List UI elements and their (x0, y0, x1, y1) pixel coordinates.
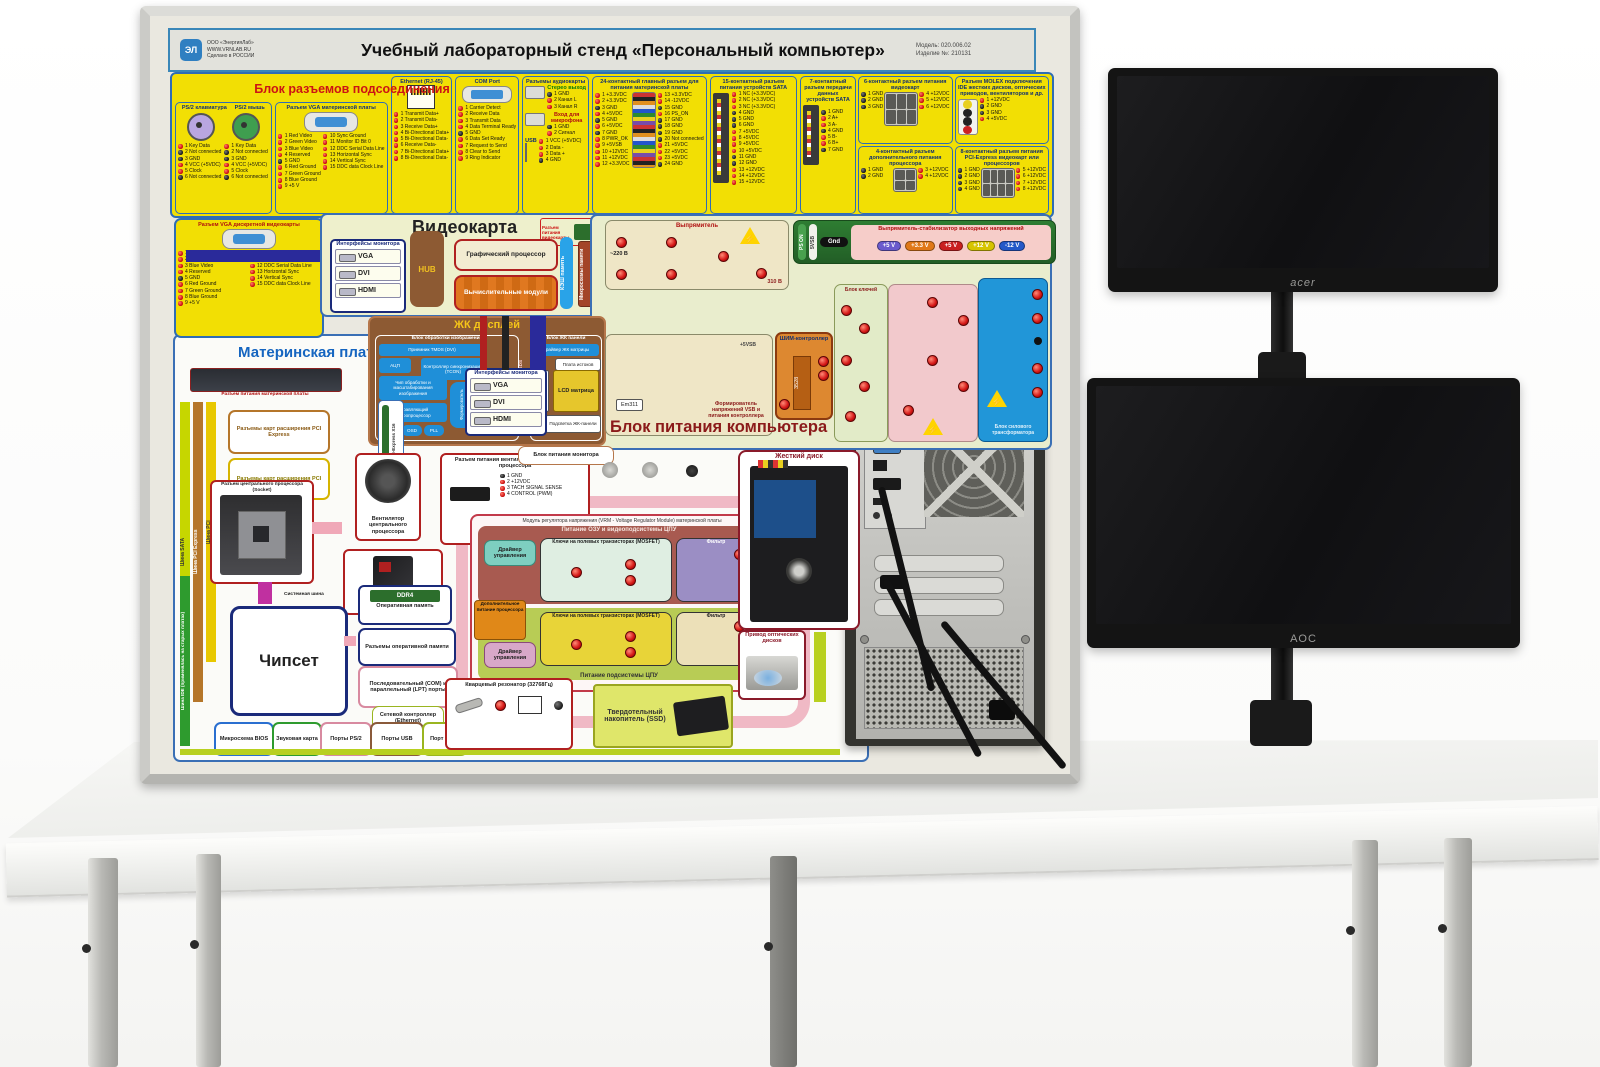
dvi-port-with-cable (873, 478, 901, 490)
vrm-top-title: Питание ОЗУ и видеоподсистемы ЦПУ (478, 527, 760, 533)
panel-com: COM Port 1 Carrier Detect2 Receive Data3… (455, 76, 519, 214)
psu-warning-icon: ⚡ (923, 418, 943, 435)
terminal-dot (1032, 313, 1043, 324)
pin-label: 4 GND (539, 157, 586, 163)
molex-connector (958, 99, 978, 135)
pin-label: 8 +12VDC (1016, 186, 1046, 192)
terminal-dot (903, 405, 914, 416)
wire-5vsb-label: +5VSB (740, 342, 756, 348)
odd-box: Привод оптических дисков (738, 630, 806, 700)
sata7-title: 7-контактный разъем передачи данных устр… (803, 79, 853, 103)
pin-label: 6 +12VDC (919, 104, 949, 110)
port-row: HDMI (470, 412, 542, 427)
usb-pins: 1 VCC (+5VDC)2 Data -3 Data +4 GND (539, 138, 586, 163)
toggle-switch (602, 462, 618, 478)
screw (1021, 635, 1030, 644)
vga-discrete-panel: Разъем VGA дискретной видеокарты 1 Red V… (174, 218, 324, 338)
terminal-dot (859, 381, 870, 392)
table-leg (1352, 840, 1378, 1067)
acer-logo: acer (1108, 277, 1498, 289)
odd-title: Привод оптических дисков (740, 632, 804, 645)
table-leg (770, 856, 797, 1067)
pin-label: 2 GND (861, 173, 892, 179)
bus-pcie: Шина PCI Express (193, 402, 203, 702)
vendor-logo-icon: ЭЛ (180, 39, 202, 61)
socket-cpu-arrow (312, 522, 342, 534)
molex-title: Разъем MOLEX подключения IDE жестких дис… (958, 79, 1047, 97)
panel-audio: Разъемы аудиокарты Стерео выход 1 GND2 К… (522, 76, 589, 214)
stereo-pins: 1 GND2 Канал L3 Канал R (547, 91, 586, 110)
pin-label: 9 +5 V (178, 300, 248, 306)
panel-atx24: 24-контактный главный разъем для питания… (592, 76, 707, 214)
vga-mb-pins-left: 1 Red Video2 Green Video3 Blue Video4 Re… (278, 133, 321, 190)
pin-label: 9 Ring Indicator (458, 155, 516, 161)
ssd-photo (673, 696, 729, 737)
terminal-dot (927, 355, 938, 366)
lcd-matrix: LCD матрица (553, 370, 599, 412)
monitor-bottom-aoc: AOC (1087, 378, 1520, 648)
pcie6-title: 6-контактный разъем питания видеокарт (861, 79, 950, 91)
pc-case (845, 398, 1045, 746)
lcd-scaler: Чип обработки и масштабирования изображе… (379, 376, 447, 400)
usb-connector (525, 143, 527, 162)
panel-sata15: 15-контактный разъем питания устройств S… (710, 76, 797, 214)
mic-jack (525, 113, 545, 126)
connector-row: PS/2 клавиатура PS/2 мышь 1 Key Data2 No… (175, 76, 1049, 214)
audio-jack (873, 512, 880, 519)
monitor-bottom-screen (1096, 386, 1511, 624)
terminal-dot (666, 237, 677, 248)
quartz-symbol (518, 696, 542, 714)
hdd-photo (750, 466, 848, 622)
terminal-dot (859, 323, 870, 334)
vrm-aux-label: Дополнительное питание процессора (475, 601, 525, 614)
videocard-panel: Видеокарта Разъем питания видеокарты Инт… (320, 213, 616, 317)
aoc-logo: AOC (1087, 633, 1520, 645)
videocard-cache: КЭШ память (560, 237, 573, 309)
rj45-port (873, 460, 887, 471)
mb-power-conn: Разъем питания материнской платы (190, 368, 340, 398)
pin-label: 3 GND (861, 104, 883, 110)
pcie6-connector (884, 92, 918, 126)
videocard-hub: HUB (410, 231, 444, 307)
pin-label: 9 +5 V (278, 183, 321, 189)
videocard-ports: VGADVIHDMI (332, 249, 404, 298)
fan-conn-pins: 1 GND2 +12VDC3 TACH SIGNAL SENSE4 CONTRO… (500, 473, 586, 501)
cpu4-title: 4-контактный разъем дополнительного пита… (861, 149, 950, 167)
ethernet-pins: 1 Transmit Data+2 Transmit Data-3 Receiv… (394, 111, 450, 161)
port-row: DVI (335, 266, 401, 281)
port-row: VGA (335, 249, 401, 264)
atx24-pins-left: 1 +3.3VDC2 +3.3VDC3 GND4 +5VDC5 GND6 +5V… (595, 92, 629, 168)
terminal-dot (958, 381, 969, 392)
pin-label: 15 DDC data Clock Line (323, 164, 385, 170)
voltage-rail: +5 V (877, 241, 902, 251)
rectifier-220v: ~220 В (610, 251, 628, 257)
pcie8-connector (981, 168, 1015, 198)
sata7-connector (803, 105, 819, 165)
cpu4-pins-left: 1 GND2 GND (861, 167, 892, 193)
videocard-monitor-if: Интерфейсы монитора VGADVIHDMI (330, 239, 406, 313)
molex-pins: 1 +12VDC2 GND3 GND4 +5VDC (980, 97, 1047, 137)
com-pins: 1 Carrier Detect2 Receive Data3 Transmit… (458, 105, 516, 162)
vsb-pill: 5VSB (809, 224, 817, 260)
atx24-pins-right: 13 +3.3VDC14 -12VDC15 GND16 PS_ON17 GND1… (658, 92, 704, 168)
terminal-dot (625, 559, 636, 570)
lcd-backlight: Подсветка ЖК-панели (545, 415, 601, 433)
pwm-title: ШИМ-контроллер (777, 336, 831, 342)
odd-green-arrow (814, 632, 826, 702)
pin-label: 4 +5VDC (980, 116, 1047, 122)
ram-box: DDR4 Оперативная память (358, 585, 452, 625)
toggle-switch (642, 462, 658, 478)
pin-label: 3 Канал R (547, 104, 586, 110)
videocard-compute: Вычислительные модули (454, 275, 558, 311)
mb-power-conn-photo (190, 368, 342, 392)
sata15-connector (713, 93, 729, 183)
ps2-keyboard-title: PS/2 клавиатура (182, 105, 227, 111)
mb-power-conn-label: Разъем питания материнской платы (190, 392, 340, 398)
vendor-logo: ЭЛ ООО «ЭнергияЛаб» WWW.VRNLAB.RU Сделан… (180, 39, 330, 61)
psu-title: Блок питания компьютера (610, 418, 827, 437)
odd-disc (754, 670, 782, 686)
terminal-dot (927, 297, 938, 308)
vga-mb-title: Разъем VGA материнской платы (278, 105, 385, 111)
vrm-bottom-driver: Драйвер управления (484, 642, 536, 668)
terminal-dot (666, 269, 677, 280)
vrm-top-mosfet-label: Ключи на полевых транзисторах (MOSFET) (541, 539, 671, 545)
terminal-dot (818, 356, 829, 367)
vrm-bottom-mosfet-label: Ключи на полевых транзисторах (MOSFET) (541, 613, 671, 619)
mb-monitor-if-title: Интерфейсы монитора (467, 370, 545, 376)
transformer-label: Блок силового трансформатора (981, 425, 1045, 437)
vrm-top-driver-label: Драйвер управления (487, 547, 533, 559)
lcd-pll: PLL (424, 425, 444, 436)
mic-title: Вход для микрофона (547, 112, 586, 124)
sysbus-arrow (258, 582, 272, 604)
keys-title: Блок ключей (835, 287, 887, 293)
pin-label: 8 Bi-Directional Data- (394, 155, 450, 161)
terminal-dot (571, 567, 582, 578)
hdmi-up-arrow (530, 316, 546, 370)
pcie-slots-box: Разъемы карт расширения PCI Express (228, 410, 330, 454)
hdd-sata-cable (758, 460, 788, 468)
em311-chip: Em311 (616, 399, 643, 411)
cpu-fan-box: Вентилятор центрального процессора (355, 453, 421, 541)
vrm-bottom-driver-label: Драйвер управления (487, 649, 533, 661)
monitor-top-acer: acer (1108, 68, 1498, 292)
cpu-fan-label: Вентилятор центрального процессора (359, 516, 417, 535)
panel-molex: Разъем MOLEX подключения IDE жестких дис… (955, 76, 1050, 144)
voltage-rail: +3.3 V (905, 241, 935, 251)
compute-label: Вычислительные модули (464, 290, 548, 296)
rectifier-title: Выпрямитель (606, 223, 788, 229)
cpu-brand-mark (379, 562, 391, 572)
board-model: Модель: 020.006.02 (916, 42, 1026, 50)
table-leg (88, 858, 118, 1067)
pwm-box: ШИМ-контроллер 3528 (775, 332, 833, 420)
board-title: Учебный лабораторный стенд «Персональный… (330, 40, 916, 61)
odd-photo (746, 656, 798, 690)
monitor-top-screen (1117, 76, 1489, 268)
sata15-title: 15-контактный разъем питания устройств S… (713, 79, 794, 91)
ps2-ports-label: Порты PS/2 (330, 736, 361, 742)
quartz-pin1 (495, 700, 506, 711)
voltage-rail: -12 V (999, 241, 1025, 251)
pin-label: 4 GND (958, 186, 980, 192)
panel-pcie8: 8-контактный разъем питания PCI-Express … (955, 146, 1050, 214)
terminal-dot (625, 631, 636, 642)
terminal-dot (616, 269, 627, 280)
cpu4-pins-right: 3 +12VDC4 +12VDC (918, 167, 949, 193)
ps2-keyboard-pins: 1 Key Data2 Not connected3 GND4 VCC (+5V… (178, 143, 222, 181)
pcie8-title: 8-контактный разъем питания PCI-Express … (958, 149, 1047, 167)
transformer-warning-icon: ⚡ (987, 390, 1007, 407)
terminal-dot (571, 639, 582, 650)
board-title-bar: ЭЛ ООО «ЭнергияЛаб» WWW.VRNLAB.RU Сделан… (168, 28, 1036, 72)
ram-slots-label: Разъемы оперативной памяти (365, 644, 449, 650)
mount-table-clamp (1250, 700, 1312, 746)
board-model-info: Модель: 020.006.02 Изделие №: 210131 (916, 42, 1026, 58)
vendor-line1: ООО «ЭнергияЛаб» (207, 40, 254, 47)
stab-box: Выпрямитель-стабилизатор выходных напряж… (851, 225, 1051, 260)
vendor-info: ООО «ЭнергияЛаб» WWW.VRNLAB.RU Сделано в… (207, 40, 254, 60)
terminal-dot (625, 575, 636, 586)
psu-former-label: Формирователь напряжений VSB и питания к… (704, 401, 768, 419)
chipset-box: Чипсет (230, 606, 348, 716)
monitor-psu-label: Блок питания монитора (533, 452, 598, 458)
hub-label: HUB (418, 265, 435, 274)
pin-label: 6 Not connected (178, 174, 222, 180)
ps-on-pill: PS ON (798, 224, 806, 260)
rectifier-box: Выпрямитель ~220 В 310 В ⚡ (605, 220, 789, 290)
terminal-dot (841, 355, 852, 366)
lcd-adc: АЦП (379, 358, 411, 373)
screw (860, 635, 869, 644)
cpu-socket-label: Разъем центрального процессора (Socket) (212, 482, 312, 495)
panel-sata7: 7-контактный разъем передачи данных устр… (800, 76, 856, 214)
terminal-dot (625, 647, 636, 658)
stereo-jack (525, 86, 545, 99)
videocard-monitor-if-title: Интерфейсы монитора (332, 241, 404, 247)
atx24-connector (632, 92, 656, 168)
terminal-dot (1032, 363, 1043, 374)
pin-label: 15 DDC data Clock Line (250, 281, 320, 287)
stab-title: Выпрямитель-стабилизатор выходных напряж… (851, 226, 1051, 232)
voltage-rail: +5 V (939, 241, 964, 251)
gpu-label: Графический процессор (466, 252, 545, 258)
pcie6-pins-right: 4 +12VDC5 +12VDC6 +12VDC (919, 91, 949, 127)
connector-section: PS/2 клавиатура PS/2 мышь 1 Key Data2 No… (170, 72, 1054, 218)
ddr4-module: DDR4 (370, 590, 440, 602)
ps2-mouse-pins: 1 Key Data2 Not connected3 GND4 VCC (+5V… (224, 143, 268, 181)
terminal-dot (841, 305, 852, 316)
quartz-title: Кварцевый резонатор (32768Гц) (449, 682, 569, 688)
panel-vga-mb: Разъем VGA материнской платы 1 Red Video… (275, 102, 388, 214)
pin-label: 4 CONTROL (PWM) (500, 491, 586, 497)
pin-label: 24 GND (658, 161, 704, 167)
pcie6-pins-left: 1 GND2 GND3 GND (861, 91, 883, 127)
com-lpt-label: Последовательный (COM) и параллельный (L… (362, 681, 454, 693)
terminal-dot (958, 315, 969, 326)
usb-ports-label: Порты USB (381, 736, 412, 742)
ps2-mouse-connector (232, 113, 260, 141)
panel-pcie6: 6-контактный разъем питания видеокарт 1 … (858, 76, 953, 144)
vrm-top-driver: Драйвер управления (484, 540, 536, 566)
panel-ethernet: Ethernet (RJ-45) 1 Transmit Data+2 Trans… (391, 76, 453, 214)
cpu-socket-box: Разъем центрального процессора (Socket) (210, 480, 314, 584)
sound-label: Звуковая карта (276, 736, 318, 742)
videocard-gpu: Графический процессор (454, 239, 558, 271)
high-voltage-warning-icon: ⚡ (740, 227, 760, 244)
mb-ports: VGADVIHDMI (467, 378, 545, 427)
lcd-image-block-title: Блок обработки изображения (376, 336, 518, 342)
voltage-rail: +12 V (967, 241, 995, 251)
right-connector-grid: 7-контактный разъем передачи данных устр… (800, 76, 1049, 214)
mic-pins: 1 GND2 Сигнал (547, 124, 586, 137)
mb-monitor-if: Интерфейсы монитора VGADVIHDMI (465, 368, 547, 436)
sata15-pins: 1 NC (+3.3VDC)2 NC (+3.3VDC)3 NC (+3.3VD… (732, 91, 794, 185)
terminal-dot (845, 411, 856, 422)
vrm-title: Модуль регулятора напряжения (VRM - Volt… (474, 518, 770, 524)
lcd-title: ЖК дисплей (370, 319, 604, 331)
com-lpt-box: Последовательный (COM) и параллельный (L… (358, 666, 458, 708)
keys-box-2: ⚡ (888, 284, 978, 442)
hdd-box: Жесткий диск (738, 450, 860, 630)
ssd-label: Твердотельный накопитель (SSD) (599, 709, 671, 723)
chipset-ram-arrow (344, 636, 356, 646)
lcd-osd: OSD (402, 425, 422, 436)
transformer-box: ⚡ Блок силового трансформатора (978, 278, 1048, 442)
quartz-box: Кварцевый резонатор (32768Гц) (445, 678, 573, 750)
vendor-line3: Сделано в РОССИИ (207, 53, 254, 60)
vrm-bottom-mosfet: Ключи на полевых транзисторах (MOSFET) (540, 612, 672, 666)
atx24-title: 24-контактный главный разъем для питания… (595, 79, 704, 91)
ssd-box: Твердотельный накопитель (SSD) (593, 684, 733, 748)
sysbus-label: Системная шина (284, 592, 324, 597)
pin-label: 6 Not connected (224, 174, 268, 180)
cpu-fan-photo (365, 459, 411, 503)
pcie8-pins-left: 1 GND2 GND3 GND4 GND (958, 167, 980, 199)
chipset-label: Чипсет (259, 651, 319, 671)
cpu-socket-photo (220, 495, 302, 575)
table-leg (196, 854, 221, 1067)
pin-label: 4 +12VDC (918, 173, 949, 179)
expansion-slot-cover (874, 555, 1004, 572)
table-leg (1444, 838, 1472, 1067)
vrm-top-section: Питание ОЗУ и видеоподсистемы ЦПУ Драйве… (478, 526, 760, 604)
lcd-tmds: Приемник TMDS (DVI) (379, 344, 485, 356)
hdd-pcb (754, 480, 816, 538)
pin-label: 2 Сигнал (547, 130, 586, 136)
port-row: VGA (470, 378, 542, 393)
vga-discrete-connector (222, 229, 276, 249)
psu-green-bar: PS ON 5VSB Gnd Выпрямитель-стабилизатор … (793, 220, 1056, 264)
ram-slots-box: Разъемы оперативной памяти (358, 628, 456, 666)
cpu4-connector (893, 168, 917, 192)
hdd-spindle (786, 558, 812, 584)
connector-section-title: Блок разъемов подсоединения (202, 82, 502, 96)
port-row: DVI (470, 395, 542, 410)
ram-label: Оперативная память (360, 603, 450, 609)
port-row: HDMI (335, 283, 401, 298)
push-button (686, 465, 698, 477)
bus-ide: Шина IDE (применялась на старых платах) (180, 576, 190, 746)
dvi-black-arrow (502, 316, 509, 370)
vrm-top-mosfet: Ключи на полевых транзисторах (MOSFET) (540, 538, 672, 602)
keys-box-1: Блок ключей (834, 284, 888, 442)
ps2-keyboard-connector (187, 113, 215, 141)
vga-mb-pins-right: 10 Sync Ground11 Monitor ID Bit 012 DDC … (323, 133, 385, 190)
panel-cpu4: 4-контактный разъем дополнительного пита… (858, 146, 953, 214)
ps2-mouse-title: PS/2 мышь (235, 105, 265, 111)
terminal-dot-black (1034, 337, 1042, 345)
bios-label: Микросхема BIOS (220, 736, 268, 742)
vrm-aux-box: Дополнительное питание процессора (474, 600, 526, 640)
terminal-dot (1032, 289, 1043, 300)
board-serial: Изделие №: 210131 (916, 50, 1026, 58)
quartz-pin2 (554, 701, 563, 710)
rectifier-310v: 310 В (767, 279, 782, 285)
vga-discrete-title: Разъем VGA дискретной видеокарты (178, 222, 320, 228)
pcie-slots-label: Разъемы карт расширения PCI Express (232, 426, 326, 438)
terminal-dot (779, 399, 790, 410)
quartz-photo (454, 697, 483, 714)
gnd-pill: Gnd (820, 237, 848, 247)
terminal-dot (616, 237, 627, 248)
pin-label: 7 GND (821, 147, 853, 153)
monitor-psu-pill: Блок питания монитора (518, 446, 614, 465)
videocard-blue-bar (186, 250, 320, 262)
vga-connector (304, 112, 358, 132)
pcie8-pins-right: 5 +12VDC6 +12VDC7 +12VDC8 +12VDC (1016, 167, 1046, 199)
panel-ps2: PS/2 клавиатура PS/2 мышь 1 Key Data2 No… (175, 102, 272, 214)
vga-red-arrow (480, 316, 487, 370)
terminal-dot (818, 370, 829, 381)
scene: acer AOC ЭЛ ООО «ЭнергияЛаб» WWW.VRNLAB.… (0, 0, 1600, 1067)
vrm-box: Модуль регулятора напряжения (VRM - Volt… (470, 514, 774, 692)
terminal-dot (1032, 387, 1043, 398)
terminal-dot (756, 268, 767, 279)
pin-label: 12 +3.3VDC (595, 161, 629, 167)
socket-die (253, 526, 269, 542)
terminal-dot (718, 251, 729, 262)
fan-conn-photo (450, 487, 490, 501)
pwm-chip: 3528 (793, 356, 811, 410)
stab-rails: +5 V+3.3 V+5 V+12 V-12 V (851, 234, 1051, 252)
pin-label: 15 +12VDC (732, 179, 794, 185)
